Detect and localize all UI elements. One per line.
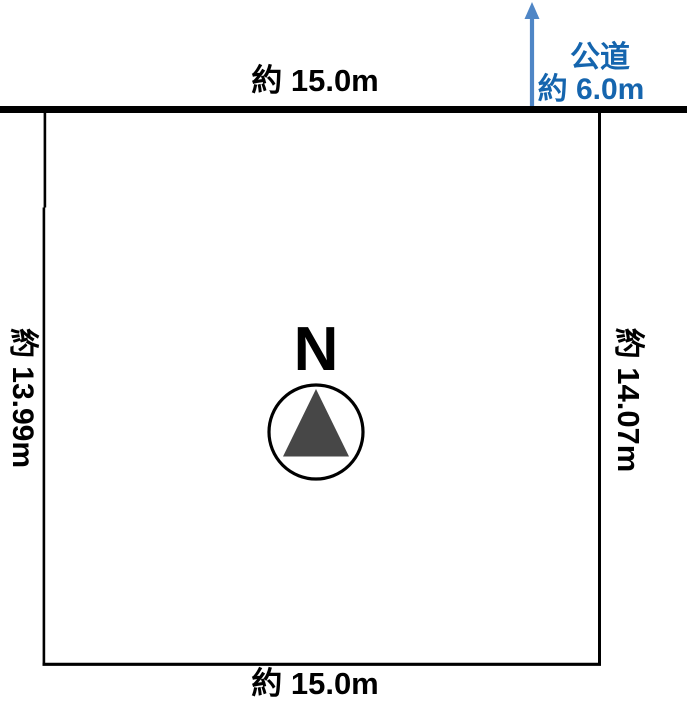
plot-boundary-left xyxy=(44,113,45,664)
land-plot-diagram: 約 15.0m 約 15.0m 約 13.99m 約 14.07m 公道 約 6… xyxy=(0,0,687,705)
dimension-left: 約 13.99m xyxy=(7,318,37,478)
road-name-label: 公道 xyxy=(521,42,679,74)
dimension-right: 約 14.07m xyxy=(614,320,644,480)
road-width-label: 約 6.0m xyxy=(512,74,670,106)
dimension-bottom: 約 15.0m xyxy=(0,667,630,701)
road-arrow-head-icon xyxy=(525,2,540,19)
compass-north-label: N xyxy=(266,322,366,378)
